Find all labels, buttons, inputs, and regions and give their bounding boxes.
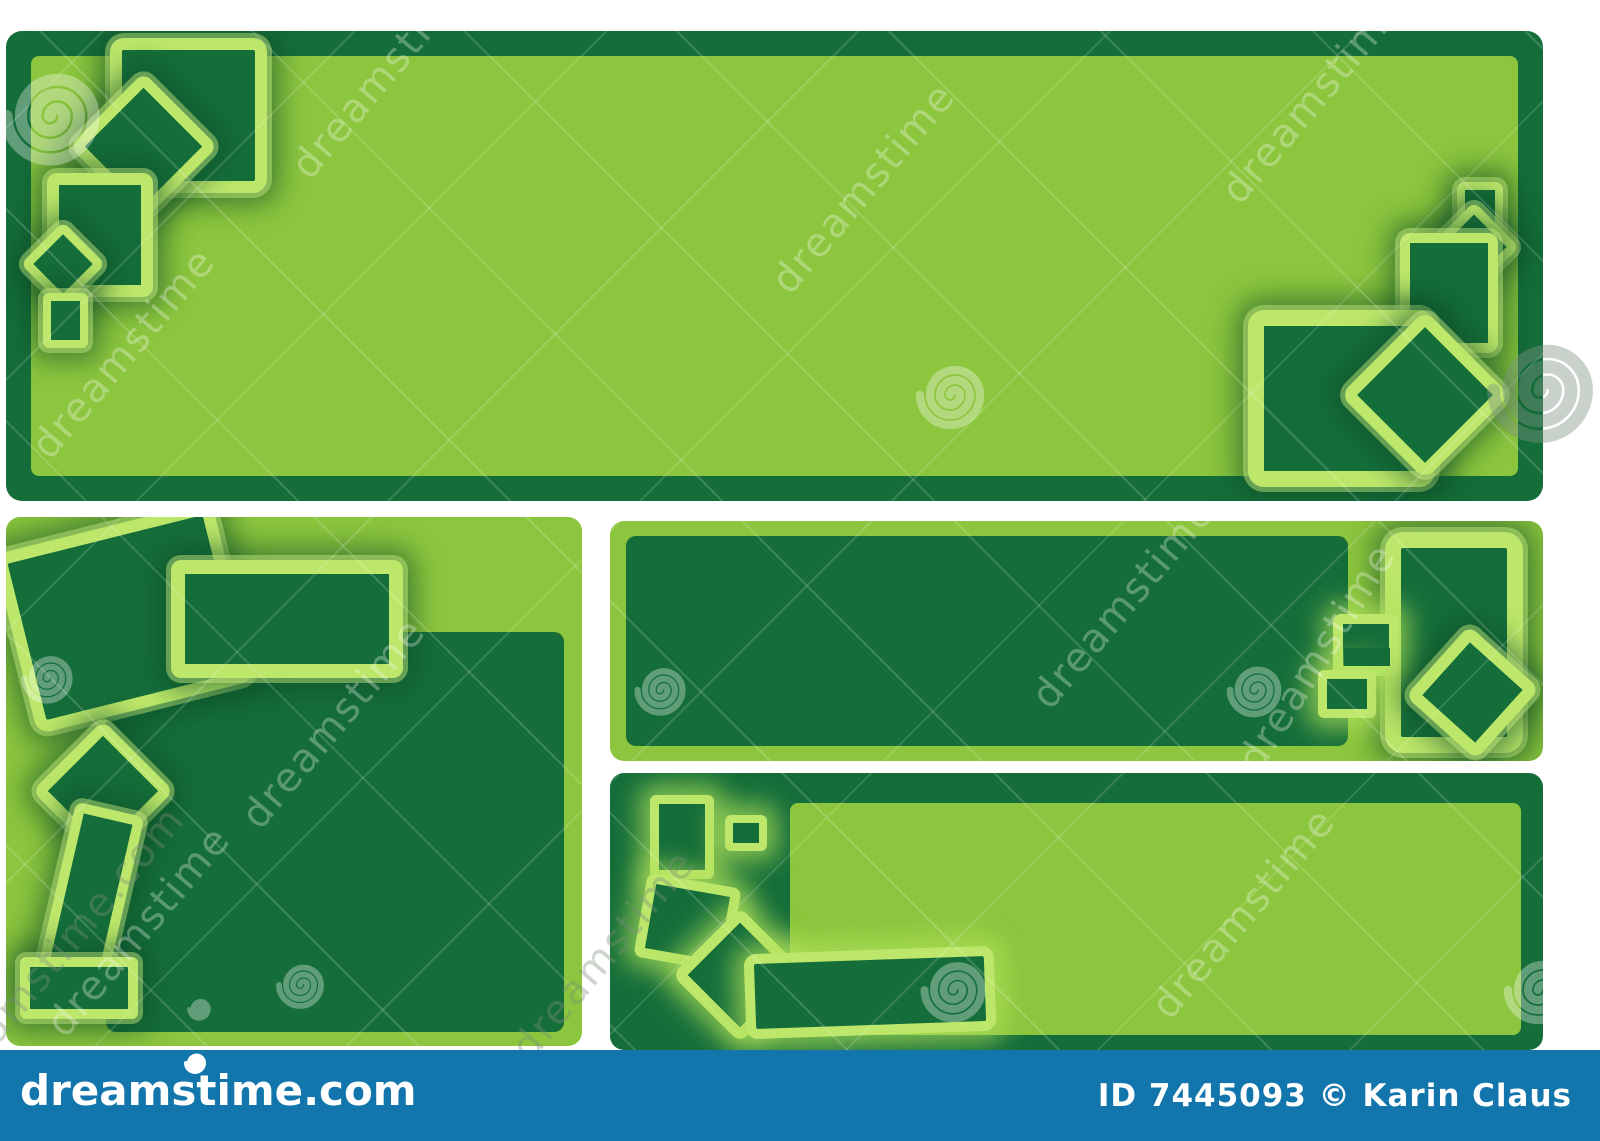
image-credit-text: ID 7445093 © Karin Claus — [1098, 1078, 1572, 1114]
decor-square-frame — [725, 815, 767, 851]
stock-image-preview: dreamstime dreamstime dreamstime dreamst… — [0, 0, 1600, 1141]
decor-rect-frame — [20, 957, 138, 1019]
decor-rect-frame — [650, 795, 714, 879]
decor-square-frame — [1318, 670, 1376, 718]
dreamstime-logo-text: dreamstime.com — [20, 1066, 417, 1115]
dreamstime-logo: dreamstime.com — [20, 1066, 417, 1115]
decor-connector-bar — [1344, 648, 1390, 666]
decor-square-frame — [43, 293, 88, 348]
spiral-logo-icon — [183, 1051, 207, 1075]
banner-top — [6, 31, 1543, 501]
decor-rect-frame — [171, 560, 403, 678]
banner-middle-right-inner-panel — [626, 536, 1348, 746]
banner-bottom-left — [6, 517, 582, 1046]
footer-bar: dreamstime.com ID 7445093 © Karin Claus — [0, 1050, 1600, 1141]
decor-rounded-bar — [744, 946, 997, 1040]
banner-bottom-right — [610, 773, 1543, 1050]
decor-square-frame — [1333, 614, 1399, 676]
banner-middle-right — [610, 521, 1543, 761]
